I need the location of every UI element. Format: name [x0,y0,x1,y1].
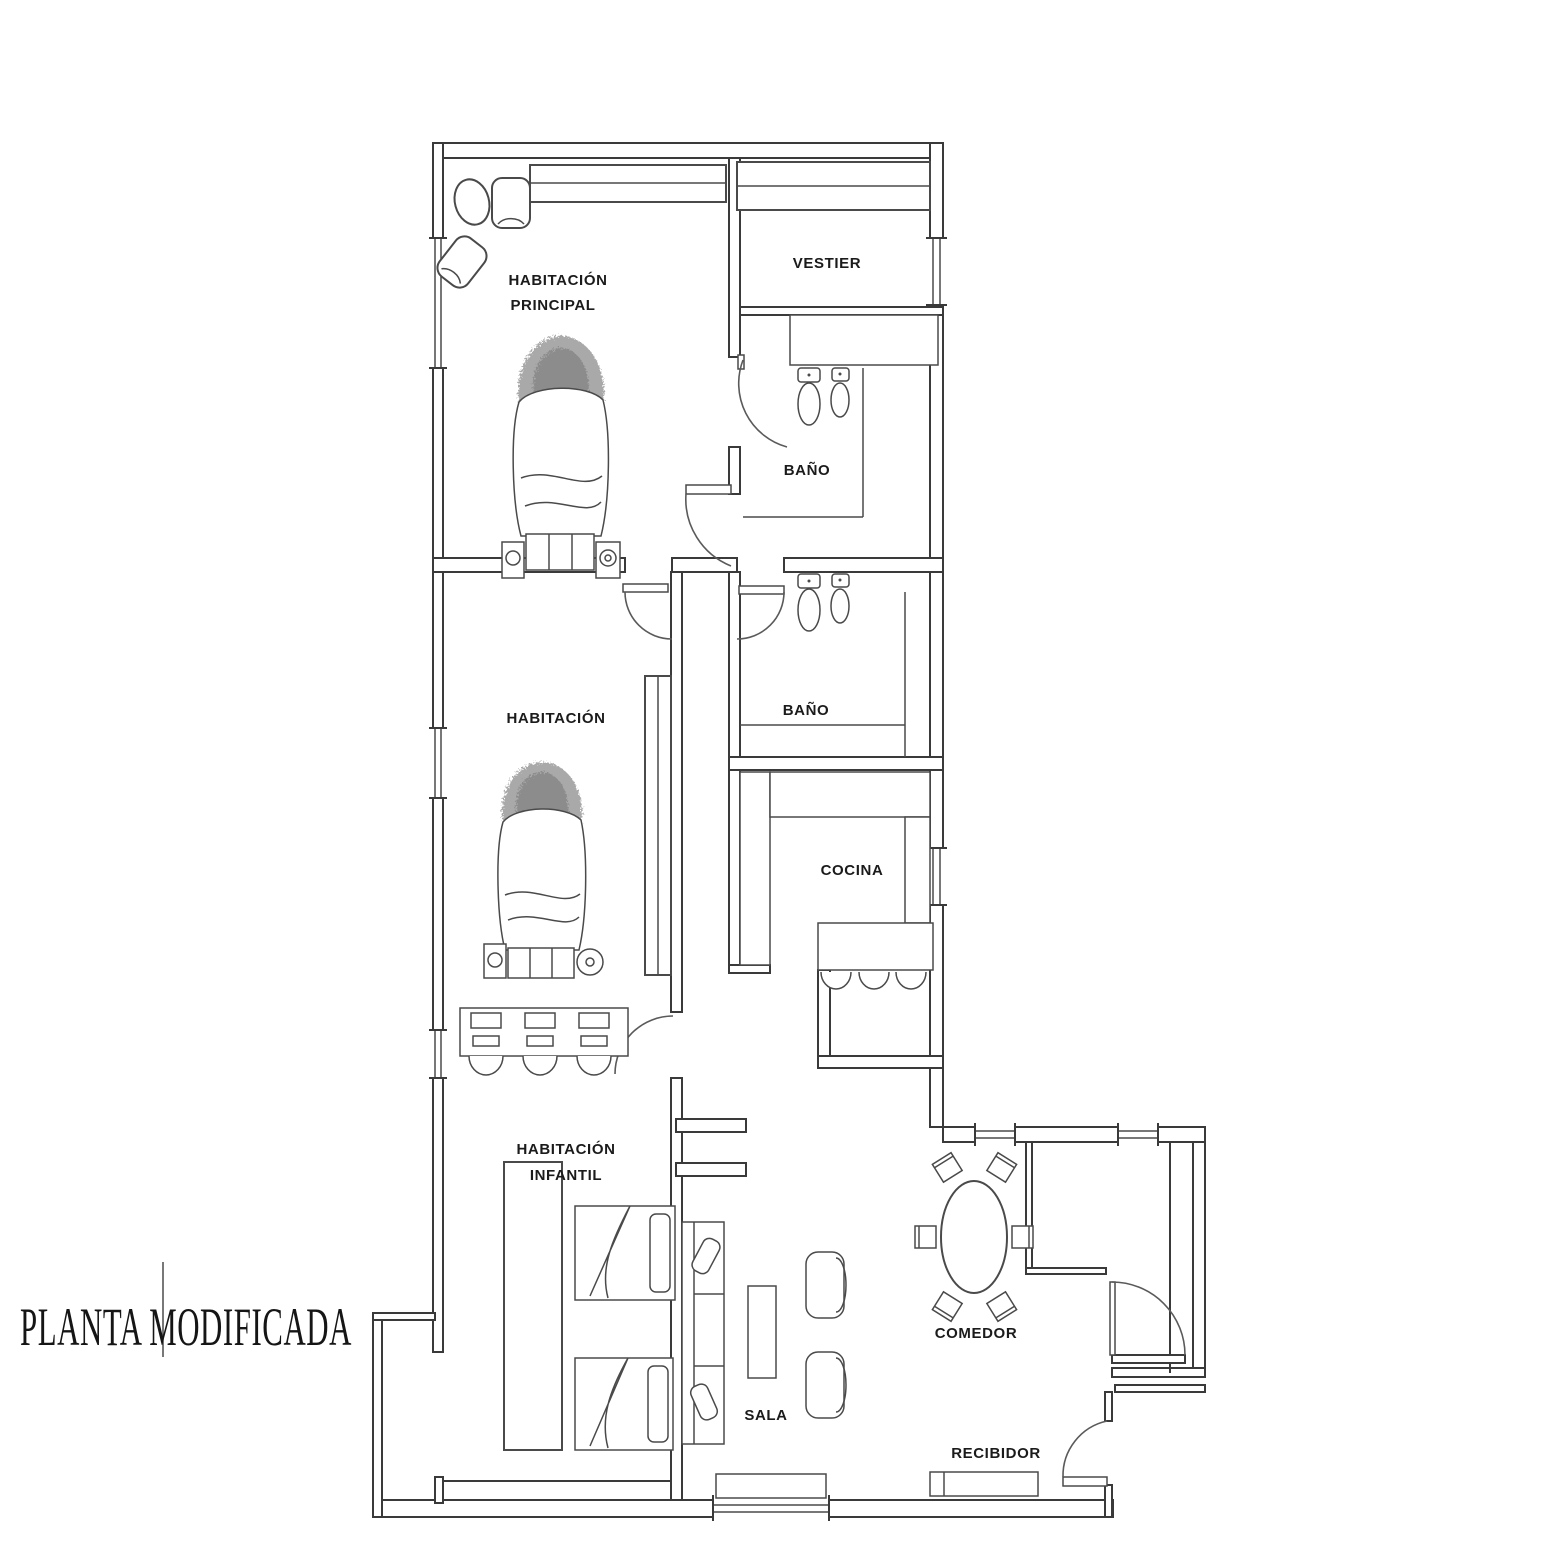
window-sala [713,1474,829,1521]
dining-chair-5 [932,1292,962,1321]
armchair-oval [450,175,495,228]
room-bano-1 [743,315,938,517]
room-habitacion-principal [433,165,726,578]
dining-chair-3 [915,1226,936,1248]
door-leaf [686,485,731,494]
plan-title: PLANTA MODIFICADA [20,1262,352,1357]
room-recibidor [930,1472,1038,1496]
door-principal [686,485,731,566]
closet-principal [530,165,726,202]
coffee-table [748,1286,776,1378]
keyboard-3 [581,1036,607,1046]
door-swing-arc [686,494,731,566]
armchair-2 [806,1352,846,1418]
bar-stool-2 [859,972,889,989]
counter-right [905,817,930,923]
dining-table [941,1181,1007,1293]
window-comedor-2 [1118,1123,1158,1146]
comedor-l-wall-vertical [1026,1142,1032,1268]
door-bano-2 [737,586,784,639]
lamp-right [600,550,616,566]
hall-beam-1 [676,1119,746,1132]
room-habitacion-infantil [460,1008,675,1450]
window-infantil [429,1030,447,1078]
bidet [831,368,849,417]
label-cocina: COCINA [821,862,884,879]
page-title: PLANTA MODIFICADA [20,1297,352,1357]
hall-left-wall-upper [671,572,682,1012]
walls [373,143,1205,1517]
counter-top [770,772,930,817]
monitor-2 [525,1013,555,1028]
spine-wall-cocina [729,770,740,965]
exterior-wall-top [433,143,943,158]
dining-chair-2 [987,1153,1017,1182]
entry-door-stub-v [1105,1392,1112,1421]
closet-vestier [737,162,930,210]
door-habitacion [623,584,672,639]
balcony-wall-top [373,1313,435,1320]
lamp-left [488,953,502,967]
dining-chair-4 [1012,1226,1033,1248]
bed-duvet [498,809,586,950]
door-swing-arc [1063,1421,1107,1477]
bed-principal [502,336,620,578]
terrace-band-b [1115,1385,1205,1392]
room-vestier [737,162,930,210]
keyboard-2 [527,1036,553,1046]
keyboard-1 [473,1036,499,1046]
label-vestier: VESTIER [793,255,861,272]
label-bano-1: BAÑO [784,461,831,479]
dining-chair-6 [987,1292,1017,1321]
door-terrace [1110,1282,1185,1355]
twin-bed-1 [575,1206,675,1300]
bed-footboard [508,948,574,978]
balcony-wall-stub [435,1477,443,1503]
door-bano-1 [738,355,787,447]
spine-wall-bano2 [729,572,740,757]
lamp-left [506,551,520,565]
bano2-bottom-wall [729,757,943,770]
room-comedor [915,1153,1033,1322]
balcony-wall-left [373,1313,382,1517]
comedor-l-wall-horizontal [1026,1268,1106,1274]
bed-habitacion [484,762,603,978]
label-habitacion-infantil-1: HABITACIÓN [516,1140,615,1158]
label-recibidor: RECIBIDOR [951,1445,1041,1462]
toilet [798,574,820,631]
door-leaf [1110,1282,1115,1355]
armchair-1 [806,1252,846,1318]
room-cocina [740,772,933,989]
closet-habitacion [645,676,671,975]
floor-plan-drawing: HABITACIÓN PRINCIPAL VESTIER BAÑO HABITA… [0,0,1558,1558]
room-bano-2 [740,574,905,757]
entry-wall-v [1105,1485,1112,1517]
door-swing-arc [625,592,672,639]
label-comedor: COMEDOR [935,1325,1018,1342]
label-habitacion-infantil-2: INFANTIL [530,1167,602,1184]
label-bano-2: BAÑO [783,701,830,719]
kitchen-bar [818,923,933,970]
bed-duvet [513,388,608,536]
label-habitacion-principal-1: HABITACIÓN [508,271,607,289]
console-table [930,1472,1038,1496]
lamp-table-right [577,949,603,975]
desk-chair-2 [523,1056,557,1075]
divider-banos [784,558,943,572]
bed-pillow [650,1214,670,1292]
hall-beam-2 [676,1163,746,1176]
vestier-bano-divider [740,307,943,315]
window-habitacion [429,728,447,798]
vanity-counter [790,315,938,365]
twin-bed-2 [575,1358,673,1450]
desk-chair-1 [469,1056,503,1075]
monitor-1 [471,1013,501,1028]
bed-pillow [648,1366,668,1442]
door-leaf [1063,1477,1107,1486]
bed-footboard [526,534,594,570]
window-vestier [926,238,947,305]
bidet [831,574,849,623]
door-entrance [1063,1421,1107,1486]
monitor-3 [579,1013,609,1028]
bar-stool-3 [896,972,926,989]
desk-chair-3 [577,1056,611,1075]
sala-comedor-divider [818,1056,943,1068]
desk-computers [460,1008,628,1075]
terrace-door-stub-h [1112,1355,1185,1363]
window-sill [716,1474,826,1498]
door-swing-arc [737,592,784,639]
floor-plan-canvas: HABITACIÓN PRINCIPAL VESTIER BAÑO HABITA… [0,0,1558,1558]
wardrobe-infantil [504,1162,562,1450]
label-habitacion: HABITACIÓN [506,709,605,727]
door-leaf [623,584,668,592]
cocina-corner-wall [729,965,770,973]
door-swing-arc [1112,1282,1185,1355]
door-leaf [739,586,784,594]
counter-left [740,772,770,965]
label-sala: SALA [744,1407,787,1424]
door-swing-arc [739,360,787,447]
dining-chair-1 [932,1153,962,1182]
window-comedor-1 [975,1123,1015,1146]
armchair-principal [492,178,530,228]
terrace-band-a [1112,1368,1205,1377]
exterior-wall-right-lower [1193,1142,1205,1377]
toilet [798,368,820,425]
sofa [682,1222,724,1444]
label-habitacion-principal-2: PRINCIPAL [510,297,595,314]
